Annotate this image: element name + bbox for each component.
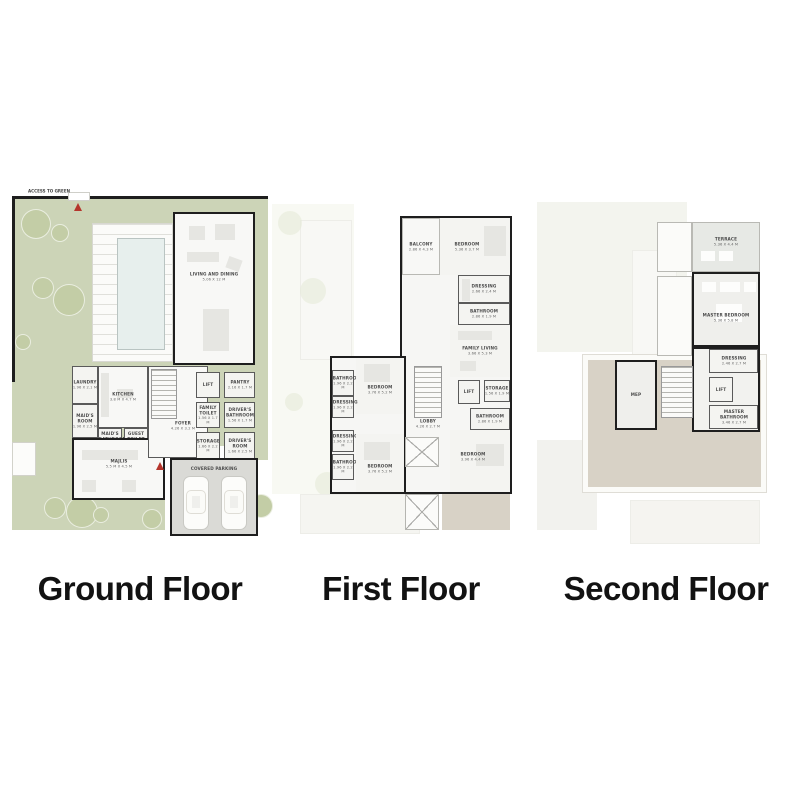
staircase (661, 366, 693, 418)
light-shaft (657, 222, 692, 272)
tree (93, 507, 109, 523)
entrance-marker-foyer-icon (156, 462, 164, 470)
furniture (203, 309, 229, 351)
boundary-wall-top (12, 196, 268, 199)
tree (300, 278, 326, 304)
room-living-dining: LIVING AND DINING 5.06 X 12 M (173, 212, 255, 365)
covered-parking: COVERED PARKING (170, 458, 258, 536)
room-family-living: FAMILY LIVING3.66 X 5.3 M (450, 325, 510, 377)
room-bedroom-left-bottom: BEDROOM3.76 X 5.2 M (356, 434, 404, 492)
room-storage: STORAGE1.66 X 2.2 M (196, 432, 220, 460)
access-to-green-label: ACCESS TO GREEN (28, 189, 70, 193)
room-pantry: PANTRY2.16 X 1.7 M (224, 372, 255, 398)
room-maids-room: MAID'S ROOM1.96 X 2.5 M (72, 404, 98, 438)
room-drivers-room: DRIVER'S ROOM1.66 X 2.5 M (224, 432, 255, 460)
ghost-court (300, 494, 420, 534)
staircase (414, 366, 442, 418)
skylight (405, 437, 439, 467)
furniture (460, 361, 476, 371)
room-bathroom-mid: BATHROOM2.86 X 1.9 M (470, 408, 510, 430)
tree (278, 211, 302, 235)
room-dressing-left-top: DRESSING1.96 X 2.2 M (332, 396, 354, 418)
room-kitchen: KITCHEN3.8 M X 4.7 M (98, 366, 148, 428)
room-bathroom-left-bottom: BATHROOM1.96 X 2.2 M (332, 454, 354, 480)
tree (32, 277, 54, 299)
room-bathroom-left-top: BATHROOM1.96 X 2.2 M (332, 370, 354, 396)
ground-floor-title: Ground Floor (12, 572, 268, 605)
garden-gate (68, 192, 90, 201)
planter (12, 442, 36, 476)
tree (285, 393, 303, 411)
furniture (720, 282, 740, 292)
ground-floor-plan: ACCESS TO GREEN LIVING AND DINING 5.06 X… (12, 196, 268, 554)
furniture (82, 480, 96, 492)
furniture (744, 282, 756, 292)
room-lift: LIFT (196, 372, 220, 398)
furniture (187, 252, 219, 262)
tree (142, 509, 162, 529)
skylight (405, 494, 439, 530)
furniture (701, 251, 715, 261)
room-label: LIVING AND DINING 5.06 X 12 M (174, 272, 254, 282)
car (183, 476, 209, 530)
furniture (189, 226, 205, 240)
floor-plans-sheet: ACCESS TO GREEN LIVING AND DINING 5.06 X… (0, 0, 800, 800)
tree (51, 224, 69, 242)
room-mep: MEP (615, 360, 657, 430)
furniture (225, 256, 242, 272)
furniture (458, 331, 492, 340)
second-floor-title: Second Floor (537, 572, 795, 605)
entrance-marker-north-icon (74, 203, 82, 211)
boundary-wall-left (12, 196, 15, 382)
furniture (702, 282, 716, 292)
pool (117, 238, 165, 350)
room-laundry: LAUNDRY1.96 X 2.1 M (72, 366, 98, 404)
furniture (364, 442, 390, 460)
light-shaft (657, 276, 692, 356)
room-bedroom-right: BEDROOM3.96 X 4.4 M (450, 430, 510, 492)
room-master-bedroom: MASTER BEDROOM5.36 X 5.8 M (692, 272, 760, 347)
tree (44, 497, 66, 519)
furniture (122, 480, 136, 492)
room-lift: LIFT (458, 380, 480, 404)
second-floor-plan: TERRACE5.36 X 4.4 M MASTER BEDROOM5.36 X… (537, 190, 795, 546)
room-master-bathroom: MASTER BATHROOM3.46 X 2.7 M (709, 405, 758, 429)
first-floor-title: First Floor (272, 572, 530, 605)
car (221, 476, 247, 530)
ghost-court (630, 500, 760, 544)
room-bedroom-top: BEDROOM5.36 X 3.7 M (440, 218, 510, 275)
staircase (151, 369, 177, 419)
tree (15, 334, 31, 350)
tree (21, 209, 51, 239)
roof-patch (442, 494, 510, 530)
furniture (215, 224, 235, 240)
room-dressing: DRESSING2.46 X 2.7 M (709, 349, 758, 373)
furniture (364, 364, 390, 382)
first-floor-plan: BALCONY2.86 X 4.3 M BEDROOM5.36 X 3.7 M … (272, 190, 530, 546)
room-terrace: TERRACE5.36 X 4.4 M (692, 222, 760, 272)
tree (53, 284, 85, 316)
room-dressing-left-bottom: DRESSING1.96 X 2.2 M (332, 430, 354, 452)
room-bathroom-top: BATHROOM2.86 X 1.9 M (458, 303, 510, 325)
furniture (719, 251, 733, 261)
room-storage: STORAGE1.56 X 1.9 M (484, 380, 510, 402)
room-drivers-bathroom: DRIVER'S BATHROOM1.56 X 1.7 M (224, 402, 255, 428)
room-bedroom-left-top: BEDROOM3.76 X 5.2 M (356, 358, 404, 414)
room-lift: LIFT (709, 377, 733, 402)
room-dressing-top: DRESSING2.66 X 2.4 M (458, 275, 510, 303)
room-family-toilet: FAMILY TOILET1.56 X 1.7 M (196, 402, 220, 428)
